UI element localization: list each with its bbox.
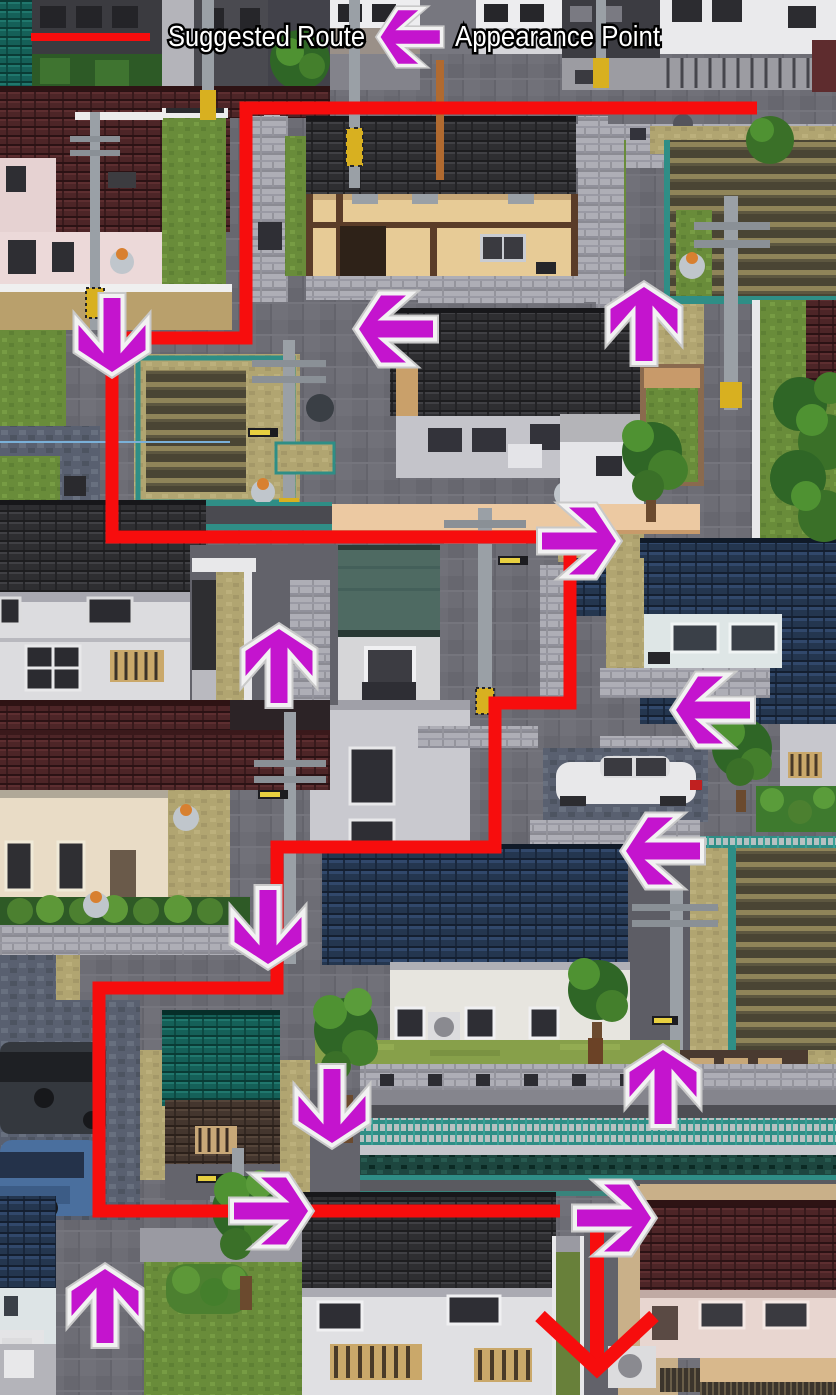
svg-text:Appearance Point: Appearance Point: [455, 21, 660, 53]
svg-text:Suggested Route: Suggested Route: [168, 21, 365, 53]
